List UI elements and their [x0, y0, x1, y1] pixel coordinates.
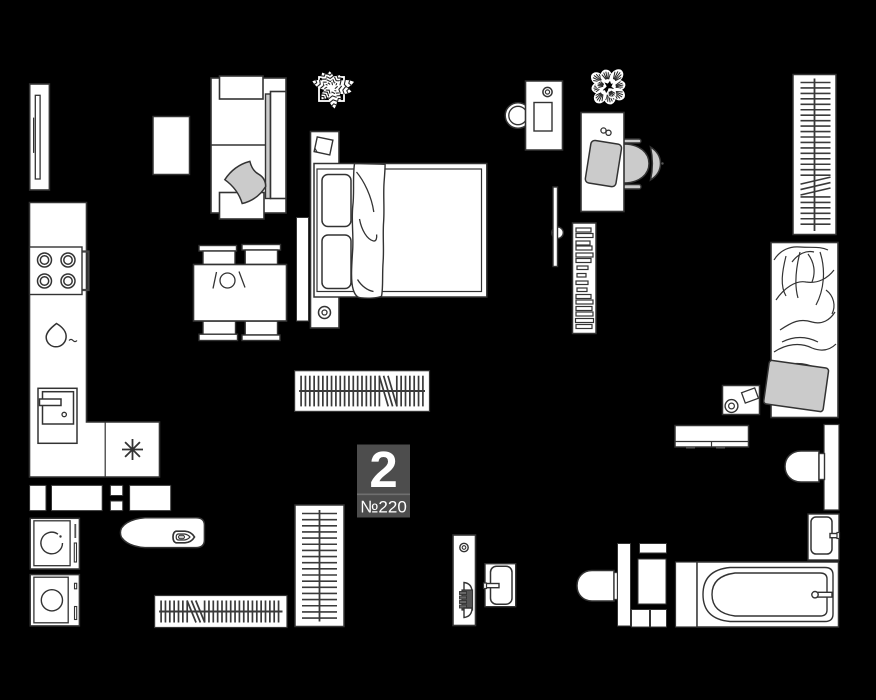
svg-text:2: 2	[369, 441, 397, 498]
svg-text:№220: №220	[360, 498, 407, 517]
